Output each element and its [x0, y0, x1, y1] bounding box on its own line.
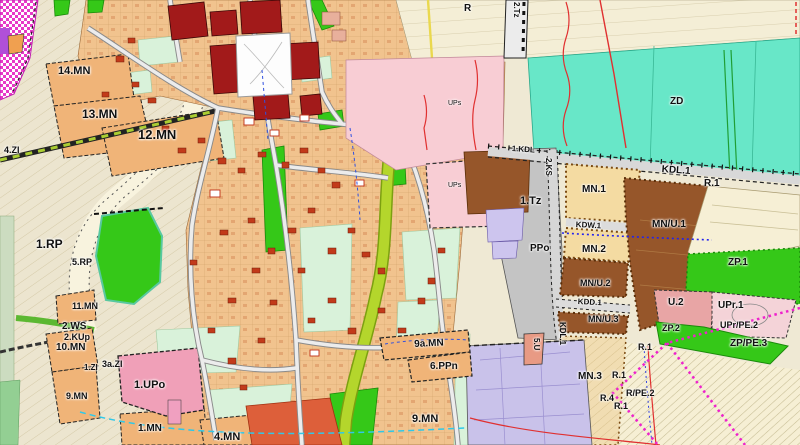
zone-label: ZP/PE.3 — [730, 339, 767, 349]
zone-label: MN.3 — [578, 372, 602, 382]
zone-terracotta — [246, 398, 342, 445]
zone-label: 4.ZI — [4, 146, 20, 155]
zone-label: MN/U.2 — [580, 279, 611, 288]
zone-label: R.1 — [638, 343, 652, 352]
zone-label: UPr.1 — [718, 301, 744, 311]
road-label: 1.KDL — [511, 145, 535, 155]
zone-label: 12.MN — [138, 128, 176, 141]
zone-label: ZD — [670, 97, 683, 107]
zone-label: R.4 — [600, 394, 614, 403]
zone-label: 13.MN — [82, 108, 117, 120]
zone-label: UPr/PE.2 — [720, 321, 758, 330]
zone-label: 9.MN — [412, 414, 438, 425]
zone-label: 9a.MN — [414, 338, 444, 350]
zone-label: UPs — [448, 182, 461, 189]
zone-label: MN.2 — [582, 245, 606, 255]
zone-label: 2.Tz — [512, 2, 520, 18]
zone-label: 3a.ZI — [102, 360, 123, 369]
zone-label: 2.KS — [544, 158, 552, 176]
zone-label: PPo — [530, 244, 549, 254]
zone-label: R.1 — [704, 179, 720, 189]
zone-label: R.1 — [614, 402, 628, 411]
road-label: KDL.1 — [661, 165, 691, 177]
road-label: KDW.1 — [576, 221, 602, 230]
zone-label: 5.RP — [72, 258, 92, 267]
zone-label: R/PE.2 — [626, 389, 655, 398]
zone-label: 1.MN — [138, 424, 162, 434]
zone-label: 9.MN — [66, 392, 88, 401]
zone-label: 2.KUp — [64, 333, 90, 342]
zone-label: 1.UPo — [134, 380, 165, 391]
zone-label: MN.1 — [582, 185, 606, 195]
lavender-area — [466, 333, 592, 445]
zone-label: U.2 — [668, 298, 684, 308]
zone-label: ZP.1 — [728, 258, 748, 268]
zone-label: R.1 — [612, 371, 626, 380]
zone-label: 1.Tz — [520, 196, 541, 207]
zone-label: 4.MN — [214, 432, 240, 443]
zone-label: ZP.2 — [662, 324, 680, 333]
zone-label: 2.WS — [62, 322, 86, 332]
zone-label: 5.U — [532, 338, 540, 350]
zone-label: 6.PPn — [430, 362, 458, 372]
zone-label: 1.RP — [36, 238, 63, 250]
zone-label: 1.ZI — [84, 364, 98, 372]
zone-label: UPs — [448, 100, 461, 107]
zoning-map-canvas[interactable]: 14.MN 13.MN 12.MN 4.ZI 1.RP 5.RP 11.MN 2… — [0, 0, 800, 445]
road-label: KDL.1 — [558, 322, 566, 345]
zone-label: 14.MN — [58, 66, 90, 77]
road-label: KDD.1 — [578, 298, 602, 307]
pink-block-small — [168, 400, 181, 424]
zone-label: 10.MN — [56, 343, 85, 353]
zone-label: MN/U.3 — [588, 315, 619, 324]
zone-label: MN/U.1 — [652, 220, 686, 230]
zone-label: 11.MN — [72, 302, 98, 311]
zone-label: R — [464, 4, 471, 14]
